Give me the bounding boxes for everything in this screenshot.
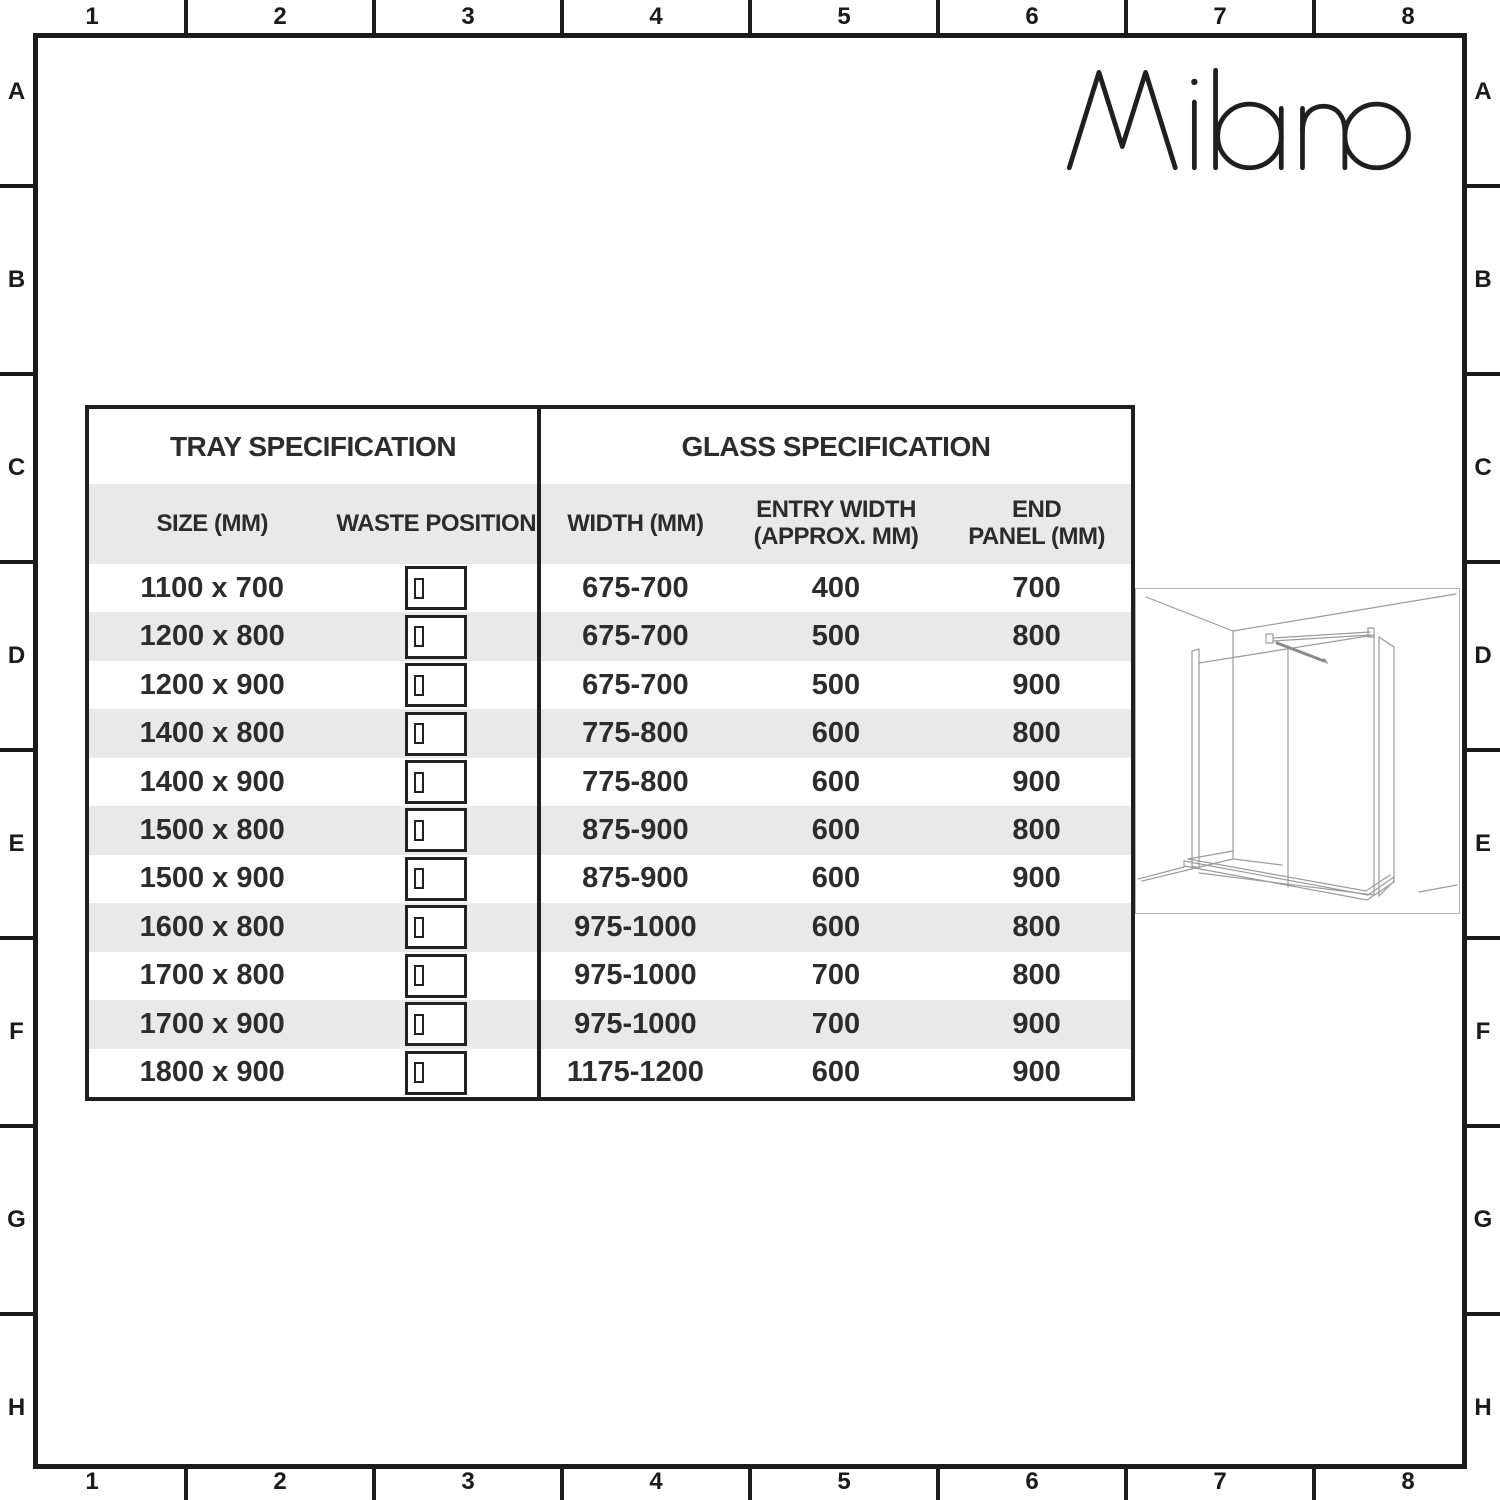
waste-drain-mark xyxy=(414,675,424,696)
glass-specification-panel: GLASS SPECIFICATION WIDTH (MM) ENTRY WID… xyxy=(541,409,1131,1097)
glass-width-value: 675-700 xyxy=(541,669,730,702)
waste-position-cell xyxy=(335,1051,537,1095)
glass-end-header: END PANEL (MM) xyxy=(942,497,1131,551)
grid-row-label: H xyxy=(0,1316,33,1500)
tray-size-value: 1500 x 900 xyxy=(89,862,335,895)
glass-width-value: 975-1000 xyxy=(541,911,730,944)
waste-position-icon xyxy=(405,954,467,998)
glass-width-value: 875-900 xyxy=(541,814,730,847)
grid-col-label: 2 xyxy=(188,0,376,33)
room-walls-and-floor xyxy=(1138,594,1457,892)
grid-row-label: F xyxy=(1466,940,1500,1128)
glass-end-value: 800 xyxy=(942,959,1131,992)
tray-row: 1200 x 800 xyxy=(89,612,537,660)
tray-size-value: 1200 x 800 xyxy=(89,620,335,653)
glass-width-value: 875-900 xyxy=(541,862,730,895)
waste-position-cell xyxy=(335,615,537,659)
waste-position-icon xyxy=(405,857,467,901)
grid-col-label: 5 xyxy=(752,0,940,33)
waste-position-cell xyxy=(335,808,537,852)
tray-row: 1700 x 900 xyxy=(89,1000,537,1048)
glass-end-value: 900 xyxy=(942,862,1131,895)
waste-drain-mark xyxy=(414,772,424,793)
waste-position-icon xyxy=(405,1002,467,1046)
waste-drain-mark xyxy=(414,626,424,647)
tray-row: 1400 x 900 xyxy=(89,758,537,806)
waste-position-cell xyxy=(335,954,537,998)
glass-width-value: 675-700 xyxy=(541,620,730,653)
waste-position-icon xyxy=(405,760,467,804)
glass-width-value: 675-700 xyxy=(541,572,730,605)
specification-table: TRAY SPECIFICATION SIZE (MM) WASTE POSIT… xyxy=(85,405,1135,1101)
grid-ruler-left: A B C D E F G H xyxy=(0,0,33,1500)
shower-enclosure-drawing xyxy=(1135,588,1460,914)
tray-row: 1400 x 800 xyxy=(89,709,537,757)
tray-row: 1100 x 700 xyxy=(89,564,537,612)
tray-size-value: 1200 x 900 xyxy=(89,669,335,702)
glass-end-value: 800 xyxy=(942,814,1131,847)
glass-width-value: 775-800 xyxy=(541,717,730,750)
waste-drain-mark xyxy=(414,917,424,938)
glass-end-value: 800 xyxy=(942,911,1131,944)
glass-row: 675-700400700 xyxy=(541,564,1131,612)
glass-row: 1175-1200600900 xyxy=(541,1049,1131,1097)
glass-row: 775-800600900 xyxy=(541,758,1131,806)
waste-position-icon xyxy=(405,712,467,756)
glass-row: 975-1000700900 xyxy=(541,1000,1131,1048)
waste-drain-mark xyxy=(414,578,424,599)
grid-col-label: 3 xyxy=(376,1464,564,1500)
grid-row-label: H xyxy=(1466,1316,1500,1500)
tray-rows: 1100 x 700 1200 x 800 1200 x 900 1400 x … xyxy=(89,564,537,1097)
milano-logo xyxy=(1052,66,1430,172)
grid-ruler-bottom: 1 2 3 4 5 6 7 8 xyxy=(0,1464,1500,1500)
waste-position-icon xyxy=(405,905,467,949)
waste-drain-mark xyxy=(414,820,424,841)
glass-end-value: 900 xyxy=(942,1008,1131,1041)
grid-col-label: 2 xyxy=(188,1464,376,1500)
grid-ruler-top: 1 2 3 4 5 6 7 8 xyxy=(0,0,1500,33)
tray-row: 1500 x 800 xyxy=(89,806,537,854)
waste-position-cell xyxy=(335,905,537,949)
glass-entry-value: 600 xyxy=(730,911,942,944)
tray-row: 1500 x 900 xyxy=(89,855,537,903)
waste-position-cell xyxy=(335,663,537,707)
waste-position-icon xyxy=(405,808,467,852)
waste-position-icon xyxy=(405,1051,467,1095)
glass-width-value: 1175-1200 xyxy=(541,1056,730,1089)
glass-entry-value: 600 xyxy=(730,717,942,750)
grid-row-label: E xyxy=(0,752,33,940)
grid-row-label: D xyxy=(0,564,33,752)
waste-drain-mark xyxy=(414,1062,424,1083)
waste-position-icon xyxy=(405,615,467,659)
glass-row: 975-1000600800 xyxy=(541,903,1131,951)
glass-entry-value: 600 xyxy=(730,814,942,847)
waste-position-cell xyxy=(335,760,537,804)
grid-col-label: 6 xyxy=(940,0,1128,33)
glass-entry-value: 700 xyxy=(730,1008,942,1041)
grid-col-label: 3 xyxy=(376,0,564,33)
glass-row: 675-700500800 xyxy=(541,612,1131,660)
glass-end-value: 900 xyxy=(942,1056,1131,1089)
tray-size-value: 1700 x 800 xyxy=(89,959,335,992)
tray-size-value: 1600 x 800 xyxy=(89,911,335,944)
waste-drain-mark xyxy=(414,1014,424,1035)
glass-entry-value: 600 xyxy=(730,766,942,799)
grid-row-label: D xyxy=(1466,564,1500,752)
glass-entry-header-line2: (APPROX. MM) xyxy=(754,524,919,551)
glass-entry-value: 600 xyxy=(730,1056,942,1089)
glass-entry-header: ENTRY WIDTH (APPROX. MM) xyxy=(730,497,942,551)
grid-col-label: 7 xyxy=(1128,0,1316,33)
glass-entry-value: 600 xyxy=(730,862,942,895)
grid-ruler-right: A B C D E F G H xyxy=(1466,0,1500,1500)
grid-row-label: C xyxy=(0,376,33,564)
grid-row-label: B xyxy=(0,188,33,376)
waste-position-cell xyxy=(335,712,537,756)
glass-end-value: 900 xyxy=(942,669,1131,702)
glass-width-value: 975-1000 xyxy=(541,959,730,992)
glass-row: 975-1000700800 xyxy=(541,952,1131,1000)
glass-entry-value: 700 xyxy=(730,959,942,992)
waste-drain-mark xyxy=(414,868,424,889)
tray-panel-title: TRAY SPECIFICATION xyxy=(89,409,537,484)
grid-col-label: 4 xyxy=(564,1464,752,1500)
tray-row: 1200 x 900 xyxy=(89,661,537,709)
glass-width-value: 975-1000 xyxy=(541,1008,730,1041)
glass-end-header-line2: PANEL (MM) xyxy=(968,524,1105,551)
grid-row-label: A xyxy=(1466,0,1500,188)
glass-end-header-line1: END xyxy=(1012,497,1061,524)
grid-row-label: G xyxy=(1466,1128,1500,1316)
tray-size-value: 1700 x 900 xyxy=(89,1008,335,1041)
grid-col-label: 5 xyxy=(752,1464,940,1500)
tray-size-header: SIZE (MM) xyxy=(89,511,335,538)
glass-panels xyxy=(1192,635,1394,896)
waste-position-icon xyxy=(405,663,467,707)
waste-drain-mark xyxy=(414,965,424,986)
glass-entry-header-line1: ENTRY WIDTH xyxy=(756,497,916,524)
glass-entry-value: 500 xyxy=(730,669,942,702)
tray-row: 1600 x 800 xyxy=(89,903,537,951)
glass-column-headers: WIDTH (MM) ENTRY WIDTH (APPROX. MM) END … xyxy=(541,484,1131,564)
glass-end-value: 800 xyxy=(942,717,1131,750)
waste-position-icon xyxy=(405,566,467,610)
tray-row: 1800 x 900 xyxy=(89,1049,537,1097)
glass-row: 675-700500900 xyxy=(541,661,1131,709)
waste-position-cell xyxy=(335,566,537,610)
waste-drain-mark xyxy=(414,723,424,744)
tray-size-value: 1400 x 900 xyxy=(89,766,335,799)
glass-end-value: 700 xyxy=(942,572,1131,605)
tray-size-value: 1400 x 800 xyxy=(89,717,335,750)
tray-waste-header: WASTE POSITION xyxy=(335,511,537,538)
glass-row: 875-900600900 xyxy=(541,855,1131,903)
grid-row-label: F xyxy=(0,940,33,1128)
grid-col-label: 6 xyxy=(940,1464,1128,1500)
waste-position-cell xyxy=(335,857,537,901)
glass-rows: 675-700400700 675-700500800 675-70050090… xyxy=(541,564,1131,1097)
glass-entry-value: 500 xyxy=(730,620,942,653)
grid-row-label: E xyxy=(1466,752,1500,940)
grid-col-label: 4 xyxy=(564,0,752,33)
tray-row: 1700 x 800 xyxy=(89,952,537,1000)
tray-size-value: 1100 x 700 xyxy=(89,572,335,605)
spec-sheet-page: 1 2 3 4 5 6 7 8 1 2 3 4 5 6 7 8 A B C D … xyxy=(0,0,1500,1500)
glass-row: 875-900600800 xyxy=(541,806,1131,854)
glass-width-value: 775-800 xyxy=(541,766,730,799)
glass-end-value: 800 xyxy=(942,620,1131,653)
grid-row-label: G xyxy=(0,1128,33,1316)
grid-col-label: 7 xyxy=(1128,1464,1316,1500)
support-bar xyxy=(1266,628,1374,663)
glass-entry-value: 400 xyxy=(730,572,942,605)
glass-panel-title: GLASS SPECIFICATION xyxy=(541,409,1131,484)
tray-specification-panel: TRAY SPECIFICATION SIZE (MM) WASTE POSIT… xyxy=(89,409,541,1097)
glass-width-header: WIDTH (MM) xyxy=(541,511,730,538)
tray-column-headers: SIZE (MM) WASTE POSITION xyxy=(89,484,537,564)
grid-row-label: C xyxy=(1466,376,1500,564)
milano-logo-strokes xyxy=(1052,66,1430,172)
tray-size-value: 1500 x 800 xyxy=(89,814,335,847)
waste-position-cell xyxy=(335,1002,537,1046)
grid-row-label: B xyxy=(1466,188,1500,376)
tray-size-value: 1800 x 900 xyxy=(89,1056,335,1089)
grid-row-label: A xyxy=(0,0,33,188)
glass-end-value: 900 xyxy=(942,766,1131,799)
glass-row: 775-800600800 xyxy=(541,709,1131,757)
